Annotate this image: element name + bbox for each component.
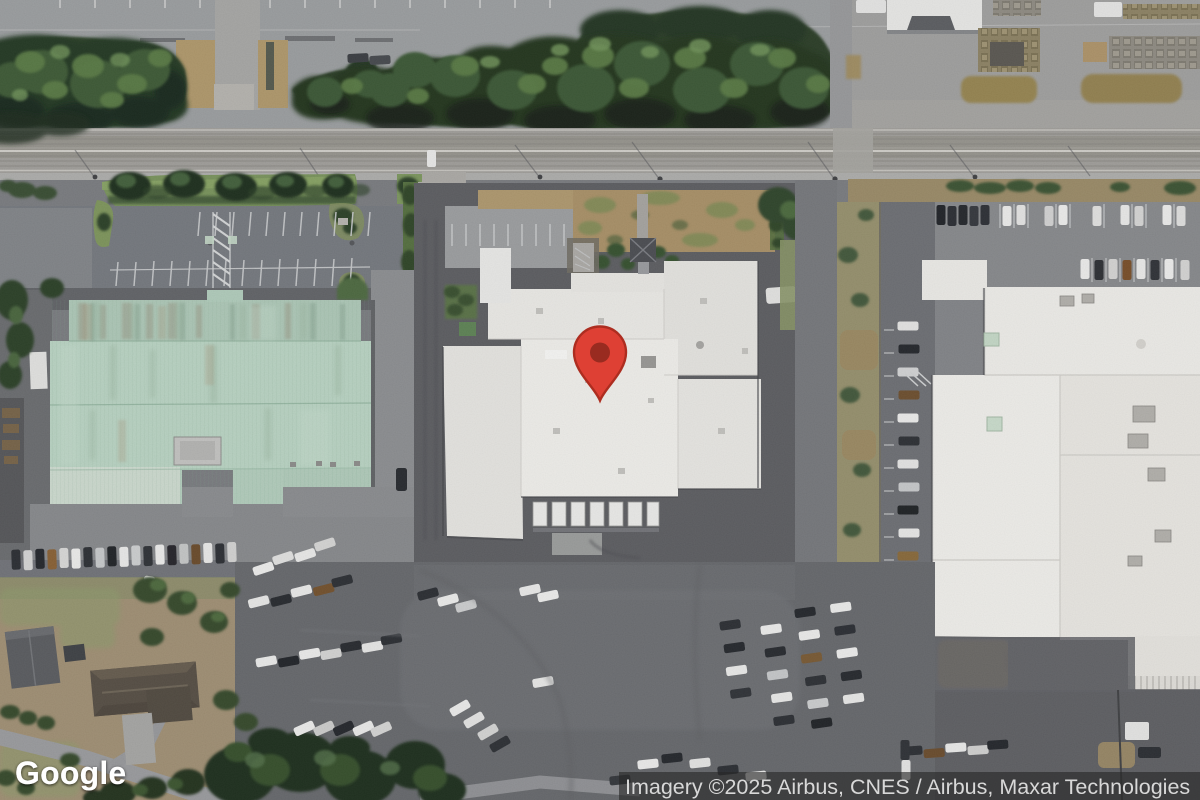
svg-text:Google: Google: [15, 755, 126, 791]
svg-text:Imagery ©2025 Airbus, CNES / A: Imagery ©2025 Airbus, CNES / Airbus, Max…: [625, 775, 1190, 799]
